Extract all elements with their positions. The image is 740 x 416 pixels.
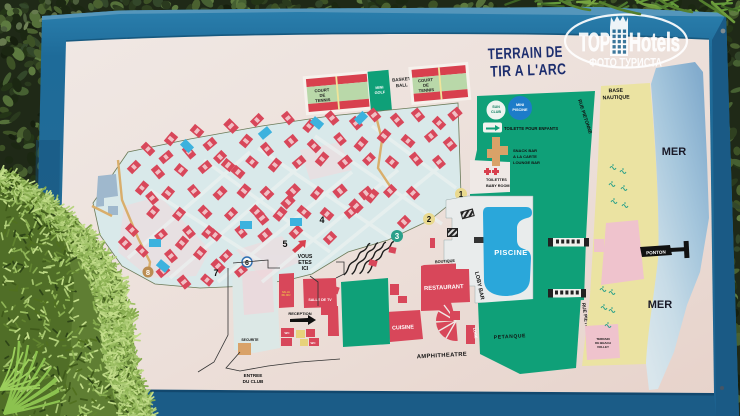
svg-text:Hotels: Hotels <box>629 27 680 57</box>
svg-text:CUISINE: CUISINE <box>392 324 415 331</box>
svg-text:BABY ROOM: BABY ROOM <box>486 184 510 188</box>
svg-text:SNACK BAR: SNACK BAR <box>513 148 537 153</box>
svg-text:TOILETTE POUR ENFANTS: TOILETTE POUR ENFANTS <box>504 126 558 131</box>
svg-text:ENTREE: ENTREE <box>244 373 263 378</box>
svg-text:VOLLEY: VOLLEY <box>597 345 609 349</box>
svg-text:TERRAIN DE: TERRAIN DE <box>487 44 563 64</box>
svg-text:5: 5 <box>282 239 287 249</box>
svg-text:3: 3 <box>395 232 400 241</box>
svg-text:LOUNGE BAR: LOUNGE BAR <box>513 160 540 165</box>
svg-text:TOP: TOP <box>579 27 610 57</box>
svg-text:TOILETTES: TOILETTES <box>486 178 507 182</box>
svg-text:NAUTIQUE: NAUTIQUE <box>602 94 630 101</box>
svg-text:A LA CARTE: A LA CARTE <box>513 154 537 159</box>
svg-text:BALL: BALL <box>396 82 409 88</box>
svg-text:4: 4 <box>319 215 324 225</box>
svg-text:TIR A L'ARC: TIR A L'ARC <box>490 61 567 81</box>
svg-text:6: 6 <box>245 260 249 267</box>
svg-text:DU CLUB: DU CLUB <box>243 379 264 384</box>
svg-text:MINI: MINI <box>516 103 524 107</box>
svg-text:MINI: MINI <box>375 85 383 90</box>
svg-text:8: 8 <box>146 268 150 277</box>
svg-text:MER: MER <box>648 299 673 311</box>
svg-text:BASE: BASE <box>609 88 624 95</box>
svg-text:DE JEU: DE JEU <box>282 294 291 297</box>
svg-text:SECURITE: SECURITE <box>241 338 259 342</box>
svg-text:7: 7 <box>213 268 218 278</box>
svg-text:ICI: ICI <box>302 266 309 272</box>
svg-text:PISCINE: PISCINE <box>512 108 528 112</box>
svg-text:PONTON: PONTON <box>646 249 666 255</box>
svg-text:PISCINE: PISCINE <box>494 248 528 257</box>
svg-text:WC: WC <box>311 341 317 345</box>
svg-text:MER: MER <box>662 146 687 158</box>
svg-text:CLUB: CLUB <box>491 110 501 114</box>
svg-text:WC: WC <box>285 331 291 335</box>
svg-text:SUN: SUN <box>492 105 500 109</box>
svg-text:ФОТО ТУРИСТА: ФОТО ТУРИСТА <box>589 58 662 70</box>
svg-text:SALLE DE TV: SALLE DE TV <box>308 298 332 302</box>
svg-text:2: 2 <box>427 215 432 224</box>
